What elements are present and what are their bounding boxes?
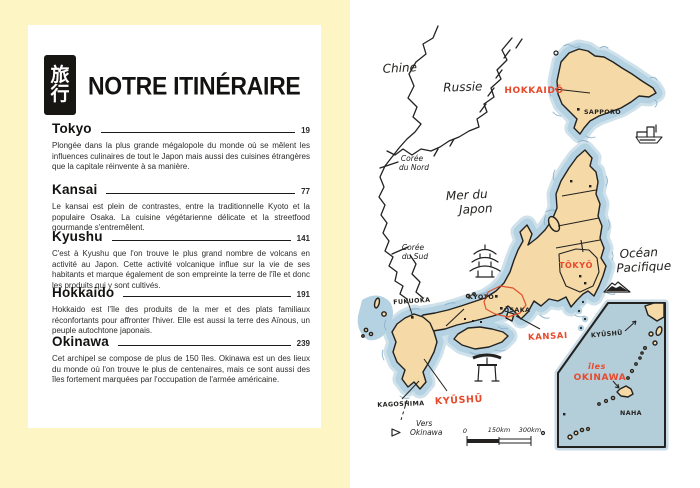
- right-page: 0 150km 300km Chine Russie HOKKAIDŌ SAPP…: [350, 0, 700, 488]
- section-page-number: 77: [301, 187, 310, 197]
- toc-card: 旅 行 NOTRE ITINÉRAIRE Tokyo 19 Plongée da…: [28, 25, 321, 428]
- inset-label-iles: îles: [588, 362, 606, 371]
- section-description: Hokkaido est l'île des produits de la me…: [52, 305, 310, 337]
- map-label-kansai: KANSAI: [528, 331, 568, 343]
- section-title: Tokyo: [52, 121, 92, 136]
- section-page-number: 191: [297, 290, 310, 300]
- section-description: Cet archipel se compose de plus de 150 î…: [52, 354, 310, 386]
- map-label-coree-nord-2: du Nord: [399, 163, 429, 172]
- goto-island: [362, 335, 364, 337]
- map-label-coree-sud-2: du Sud: [402, 252, 428, 261]
- ship-icon: [636, 125, 662, 143]
- section-leader: [123, 296, 290, 297]
- map-label-coree-sud: Corée: [402, 243, 425, 252]
- inset-label-naha: NAHA: [620, 410, 642, 417]
- boat-arrow-icon: [392, 429, 400, 436]
- page-title: NOTRE ITINÉRAIRE: [88, 72, 318, 101]
- section-leader: [118, 345, 291, 346]
- section-leader: [101, 132, 295, 133]
- torii-gate-icon: [473, 355, 501, 381]
- scale-mid-label: 150km: [488, 426, 511, 434]
- section-title: Okinawa: [52, 334, 109, 349]
- toc-section-kansai: Kansai 77 Le kansai est plein de contras…: [52, 182, 310, 234]
- map-label-mer-du-japon-2: Japon: [457, 201, 493, 217]
- map-label-chine: Chine: [382, 60, 417, 76]
- iki-island: [382, 312, 386, 316]
- pagoda-icon: [470, 245, 500, 277]
- map-label-sapporo: SAPPORO: [584, 109, 621, 116]
- map-label-kyoto: KYOTO: [468, 294, 494, 301]
- map-label-mer-du-japon: Mer du: [446, 187, 489, 203]
- map-label-russie: Russie: [443, 79, 483, 94]
- map-label-ocean-pacifique-2: Pacifique: [616, 259, 672, 276]
- left-page: 旅 行 NOTRE ITINÉRAIRE Tokyo 19 Plongée da…: [0, 0, 350, 488]
- tiny-island: [542, 432, 545, 435]
- scale-zero-label: 0: [463, 427, 467, 435]
- map-label-vers-okinawa: Vers: [416, 419, 432, 428]
- section-description: Plongée dans la plus grande mégalopole d…: [52, 141, 310, 173]
- map-label-osaka: ŌSAKA: [504, 305, 531, 314]
- map-label-kyushu: KYŪSHŪ: [435, 394, 484, 408]
- section-leader: [112, 240, 291, 241]
- inset-label-okinawa: OKINAWA: [574, 373, 627, 383]
- map-label-kagoshima: KAGOSHIMA: [377, 400, 424, 409]
- toc-section-okinawa: Okinawa 239 Cet archipel se compose de p…: [52, 334, 310, 386]
- section-page-number: 19: [301, 126, 310, 136]
- map-label-hokkaido: HOKKAIDŌ: [504, 85, 563, 96]
- map-label-vers-okinawa-2: Okinawa: [410, 428, 443, 437]
- toc-section-hokkaido: Hokkaido 191 Hokkaido est l'île des prod…: [52, 285, 310, 337]
- toc-section-tokyo: Tokyo 19 Plongée dans la plus grande még…: [52, 121, 310, 173]
- japan-map: 0 150km 300km Chine Russie HOKKAIDŌ SAPP…: [350, 0, 700, 488]
- goto-island: [369, 332, 372, 335]
- section-page-number: 141: [297, 234, 310, 244]
- section-title: Kyushu: [52, 229, 103, 244]
- toc-section-kyushu: Kyushu 141 C'est à Kyushu que l'on trouv…: [52, 229, 310, 292]
- small-island: [554, 51, 558, 55]
- map-label-tokyo: TŌKYŌ: [559, 260, 593, 270]
- section-page-number: 239: [297, 339, 310, 349]
- map-label-fukuoka: FUKUOKA: [393, 297, 431, 307]
- section-leader: [106, 193, 295, 194]
- travel-stamp: 旅 行: [44, 55, 76, 115]
- stamp-character-bottom: 行: [50, 85, 69, 104]
- scale-end-label: 300km: [519, 426, 542, 434]
- book-spread: 旅 行 NOTRE ITINÉRAIRE Tokyo 19 Plongée da…: [0, 0, 700, 488]
- section-title: Kansai: [52, 182, 97, 197]
- scale-bar: 0 150km 300km: [463, 426, 541, 446]
- map-label-coree-nord: Corée: [401, 154, 424, 163]
- section-title: Hokkaido: [52, 285, 114, 300]
- goto-island: [364, 328, 367, 331]
